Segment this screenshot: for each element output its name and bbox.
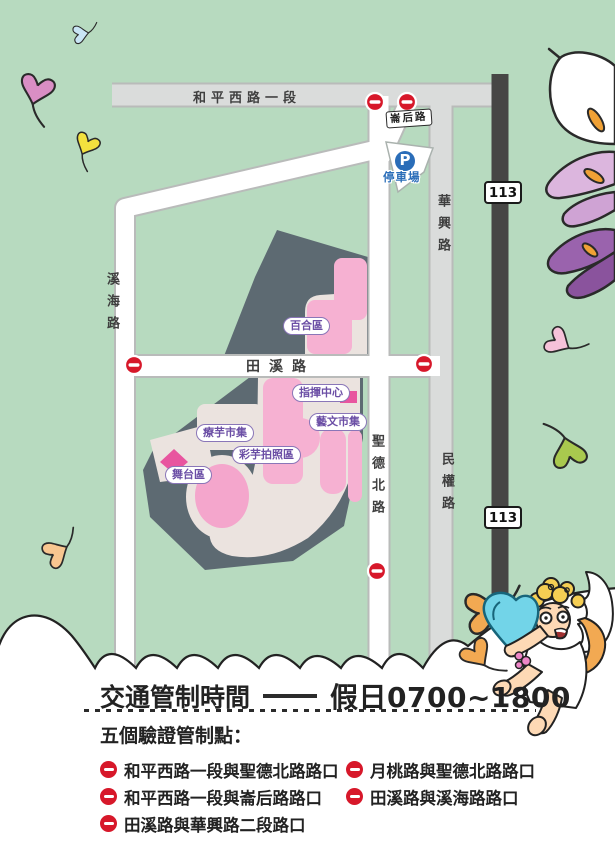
highway-113-badge-north: 113 bbox=[484, 181, 522, 204]
checkpoint-text: 和平西路一段與聖德北路路口 bbox=[124, 758, 339, 782]
checkpoints-column-left: 和平西路一段與聖德北路路口 和平西路一段與崙后路路口 田溪路與華興路二段路口 bbox=[100, 756, 339, 837]
checkpoint-text: 田溪路與華興路二段路口 bbox=[124, 812, 306, 836]
zone-label-healing-market: 療芋市集 bbox=[196, 424, 254, 442]
market-strip bbox=[320, 428, 346, 494]
market-strip-2 bbox=[348, 430, 362, 502]
no-entry-icon bbox=[100, 788, 117, 805]
zone-label-command-center: 指揮中心 bbox=[292, 384, 350, 402]
road-label-minquan: 民權路 bbox=[437, 452, 456, 518]
checkpoint-item: 和平西路一段與聖德北路路口 bbox=[100, 756, 339, 783]
road-label-huaxing: 華興路 bbox=[433, 194, 452, 260]
checkpoints-column-right: 月桃路與聖德北路路口 田溪路與溪海路路口 bbox=[346, 756, 535, 810]
checkpoint-item: 月桃路與聖德北路路口 bbox=[346, 756, 535, 783]
checkpoint-item: 和平西路一段與崙后路路口 bbox=[100, 783, 339, 810]
dashed-divider bbox=[84, 709, 536, 712]
road-label-shengdebei: 聖德北路 bbox=[367, 434, 386, 522]
no-entry-sign-tianxi-xihai bbox=[125, 356, 143, 374]
leaf-pink-left bbox=[12, 73, 57, 127]
checkpoint-text: 田溪路與溪海路路口 bbox=[370, 785, 519, 809]
no-entry-icon bbox=[100, 815, 117, 832]
no-entry-sign-heping-shengdebei bbox=[366, 93, 384, 111]
no-entry-icon bbox=[100, 761, 117, 778]
no-entry-icon bbox=[346, 788, 363, 805]
checkpoints-title: 五個驗證管制點： bbox=[100, 721, 252, 748]
checkpoint-text: 和平西路一段與崙后路路口 bbox=[124, 785, 322, 809]
no-entry-icon bbox=[346, 761, 363, 778]
zone-label-lily: 百合區 bbox=[283, 317, 330, 335]
leaf-green bbox=[544, 415, 589, 469]
map-canvas bbox=[0, 0, 615, 850]
checkpoint-text: 月桃路與聖德北路路口 bbox=[370, 758, 535, 782]
zone-label-art-market: 藝文市集 bbox=[309, 413, 367, 431]
no-entry-sign-shengdebei-south bbox=[368, 562, 386, 580]
parking-label: 停車場 bbox=[383, 169, 421, 185]
road-label-lunhou: 崙后路 bbox=[385, 108, 432, 128]
dash-divider bbox=[263, 694, 317, 698]
no-entry-sign-tianxi-huaxing bbox=[415, 355, 433, 373]
highway-113-badge-south: 113 bbox=[484, 506, 522, 529]
zone-label-photo-zone: 彩芋拍照區 bbox=[232, 446, 301, 464]
no-entry-sign-heping-lunhou bbox=[398, 93, 416, 111]
leaf-blue bbox=[72, 22, 99, 44]
road-label-tianxi: 田溪路 bbox=[246, 356, 315, 376]
zone-label-stage: 舞台區 bbox=[165, 466, 212, 484]
leaf-yellow bbox=[66, 131, 102, 172]
calla-lilies bbox=[546, 49, 615, 298]
traffic-control-map-flyer: 和平西路一段 崙后路 P 停車場 華興路 113 溪海路 田溪路 聖德北路 民權… bbox=[0, 0, 615, 850]
calla-white bbox=[550, 52, 615, 144]
parking-icon-letter: P bbox=[397, 150, 413, 170]
road-label-heping: 和平西路一段 bbox=[193, 87, 293, 106]
road-label-xihai: 溪海路 bbox=[102, 272, 121, 338]
leaf-pink-right bbox=[542, 325, 589, 368]
calla-lilac bbox=[546, 152, 615, 198]
checkpoint-item: 田溪路與華興路二段路口 bbox=[100, 810, 339, 837]
checkpoint-item: 田溪路與溪海路路口 bbox=[346, 783, 535, 810]
leaf-orange bbox=[40, 527, 87, 570]
